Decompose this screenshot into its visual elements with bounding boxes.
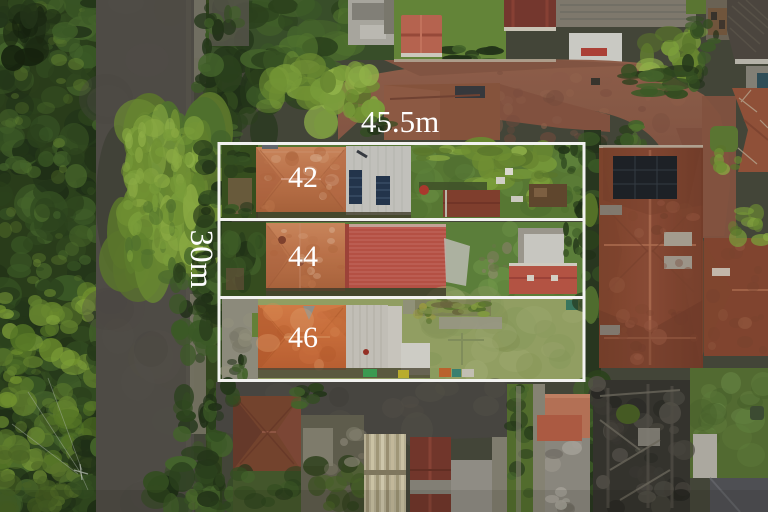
svg-text:46: 46 — [288, 321, 318, 354]
svg-text:42: 42 — [288, 161, 318, 194]
svg-text:44: 44 — [288, 240, 318, 273]
svg-text:30m: 30m — [183, 230, 219, 289]
svg-text:45.5m: 45.5m — [361, 104, 439, 139]
